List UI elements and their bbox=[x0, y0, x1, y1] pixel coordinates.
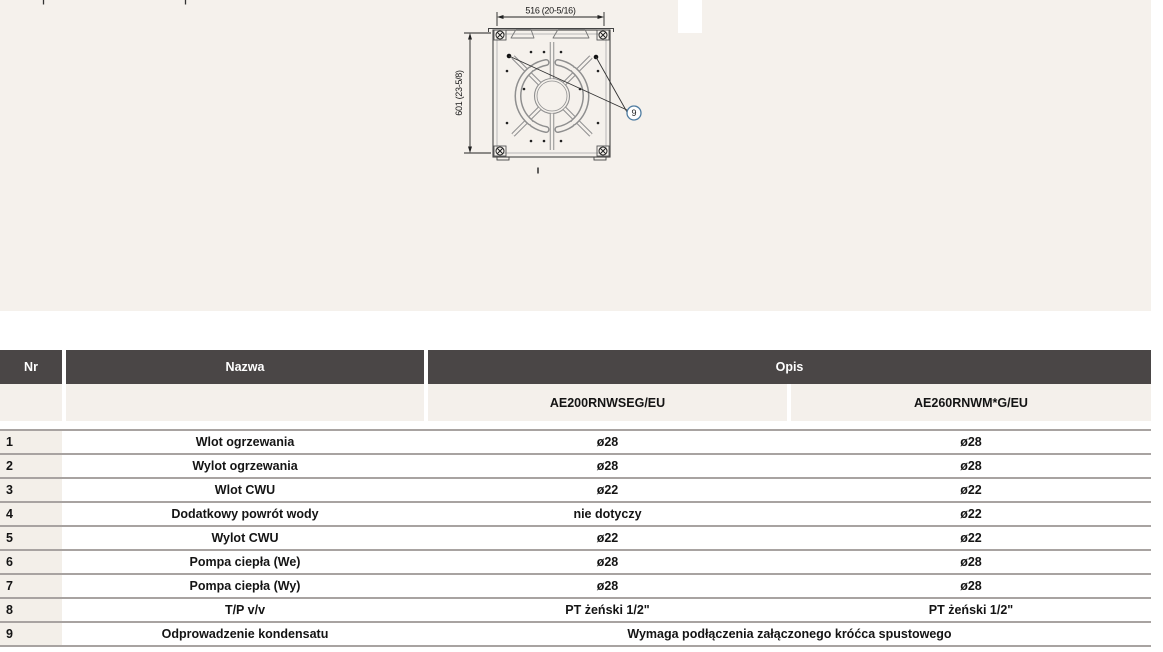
row-value-span: Wymaga podłączenia załączonego króćca sp… bbox=[428, 623, 1151, 645]
row-number: 4 bbox=[0, 503, 62, 525]
dimension-height-label: 601 (23-5/8) bbox=[454, 70, 464, 116]
table-body: 1Wlot ogrzewaniaø28ø282Wylot ogrzewaniaø… bbox=[0, 429, 1151, 647]
row-value-2: PT żeński 1/2" bbox=[791, 599, 1151, 621]
row-number: 7 bbox=[0, 575, 62, 597]
row-value-2: ø28 bbox=[791, 431, 1151, 453]
row-number: 8 bbox=[0, 599, 62, 621]
row-number: 6 bbox=[0, 551, 62, 573]
table-gap bbox=[0, 421, 1151, 429]
row-number: 1 bbox=[0, 431, 62, 453]
row-name: Wlot CWU bbox=[66, 479, 424, 501]
row-value-1: ø22 bbox=[428, 479, 787, 501]
row-value-1: ø28 bbox=[428, 431, 787, 453]
row-name: Dodatkowy powrót wody bbox=[66, 503, 424, 525]
row-value-1: nie dotyczy bbox=[428, 503, 787, 525]
col-header-nr: Nr bbox=[0, 350, 62, 384]
table-row: 6Pompa ciepła (We)ø28ø28 bbox=[0, 549, 1151, 573]
table-header-row: Nr Nazwa Opis bbox=[0, 350, 1151, 384]
table-row: 5Wylot CWUø22ø22 bbox=[0, 525, 1151, 549]
dimension-width-label: 516 (20-5/16) bbox=[525, 6, 575, 16]
row-name: Wlot ogrzewania bbox=[66, 431, 424, 453]
spec-table: Nr Nazwa Opis AE200RNWSEG/EU AE260RNWM*G… bbox=[0, 350, 1151, 647]
row-name: Pompa ciepła (We) bbox=[66, 551, 424, 573]
col-header-opis: Opis bbox=[428, 350, 1151, 384]
row-name: Wylot ogrzewania bbox=[66, 455, 424, 477]
row-name: Odprowadzenie kondensatu bbox=[66, 623, 424, 645]
row-number: 3 bbox=[0, 479, 62, 501]
row-value-2: ø22 bbox=[791, 527, 1151, 549]
table-row: 9Odprowadzenie kondensatuWymaga podłącze… bbox=[0, 621, 1151, 645]
row-number: 9 bbox=[0, 623, 62, 645]
col-header-nazwa: Nazwa bbox=[66, 350, 424, 384]
white-patch bbox=[678, 0, 702, 33]
row-value-1: PT żeński 1/2" bbox=[428, 599, 787, 621]
row-name: T/P v/v bbox=[66, 599, 424, 621]
row-value-1: ø28 bbox=[428, 455, 787, 477]
table-row: 2Wylot ogrzewaniaø28ø28 bbox=[0, 453, 1151, 477]
row-value-1: ø28 bbox=[428, 575, 787, 597]
model-name-2: AE260RNWM*G/EU bbox=[791, 384, 1151, 421]
row-value-1: ø28 bbox=[428, 551, 787, 573]
row-value-2: ø28 bbox=[791, 575, 1151, 597]
diagram-band-background bbox=[0, 0, 1151, 311]
row-name: Wylot CWU bbox=[66, 527, 424, 549]
table-row: 7Pompa ciepła (Wy)ø28ø28 bbox=[0, 573, 1151, 597]
model-row-empty-nazwa bbox=[66, 384, 424, 421]
table-row: 4Dodatkowy powrót wodynie dotyczyø22 bbox=[0, 501, 1151, 525]
callout-9-label: 9 bbox=[631, 108, 636, 118]
table-row: 8T/P v/vPT żeński 1/2"PT żeński 1/2" bbox=[0, 597, 1151, 621]
row-number: 5 bbox=[0, 527, 62, 549]
table-row: 1Wlot ogrzewaniaø28ø28 bbox=[0, 429, 1151, 453]
model-row-empty-nr bbox=[0, 384, 62, 421]
row-value-2: ø28 bbox=[791, 551, 1151, 573]
table-model-row: AE200RNWSEG/EU AE260RNWM*G/EU bbox=[0, 384, 1151, 421]
row-number: 2 bbox=[0, 455, 62, 477]
unit-bottom-view-diagram: 516 (20-5/16) 601 (23-5/8) bbox=[0, 0, 1163, 335]
row-value-2: ø22 bbox=[791, 503, 1151, 525]
row-value-2: ø28 bbox=[791, 455, 1151, 477]
row-value-2: ø22 bbox=[791, 479, 1151, 501]
model-name-1: AE200RNWSEG/EU bbox=[428, 384, 787, 421]
row-name: Pompa ciepła (Wy) bbox=[66, 575, 424, 597]
row-value-1: ø22 bbox=[428, 527, 787, 549]
table-row: 3Wlot CWUø22ø22 bbox=[0, 477, 1151, 501]
